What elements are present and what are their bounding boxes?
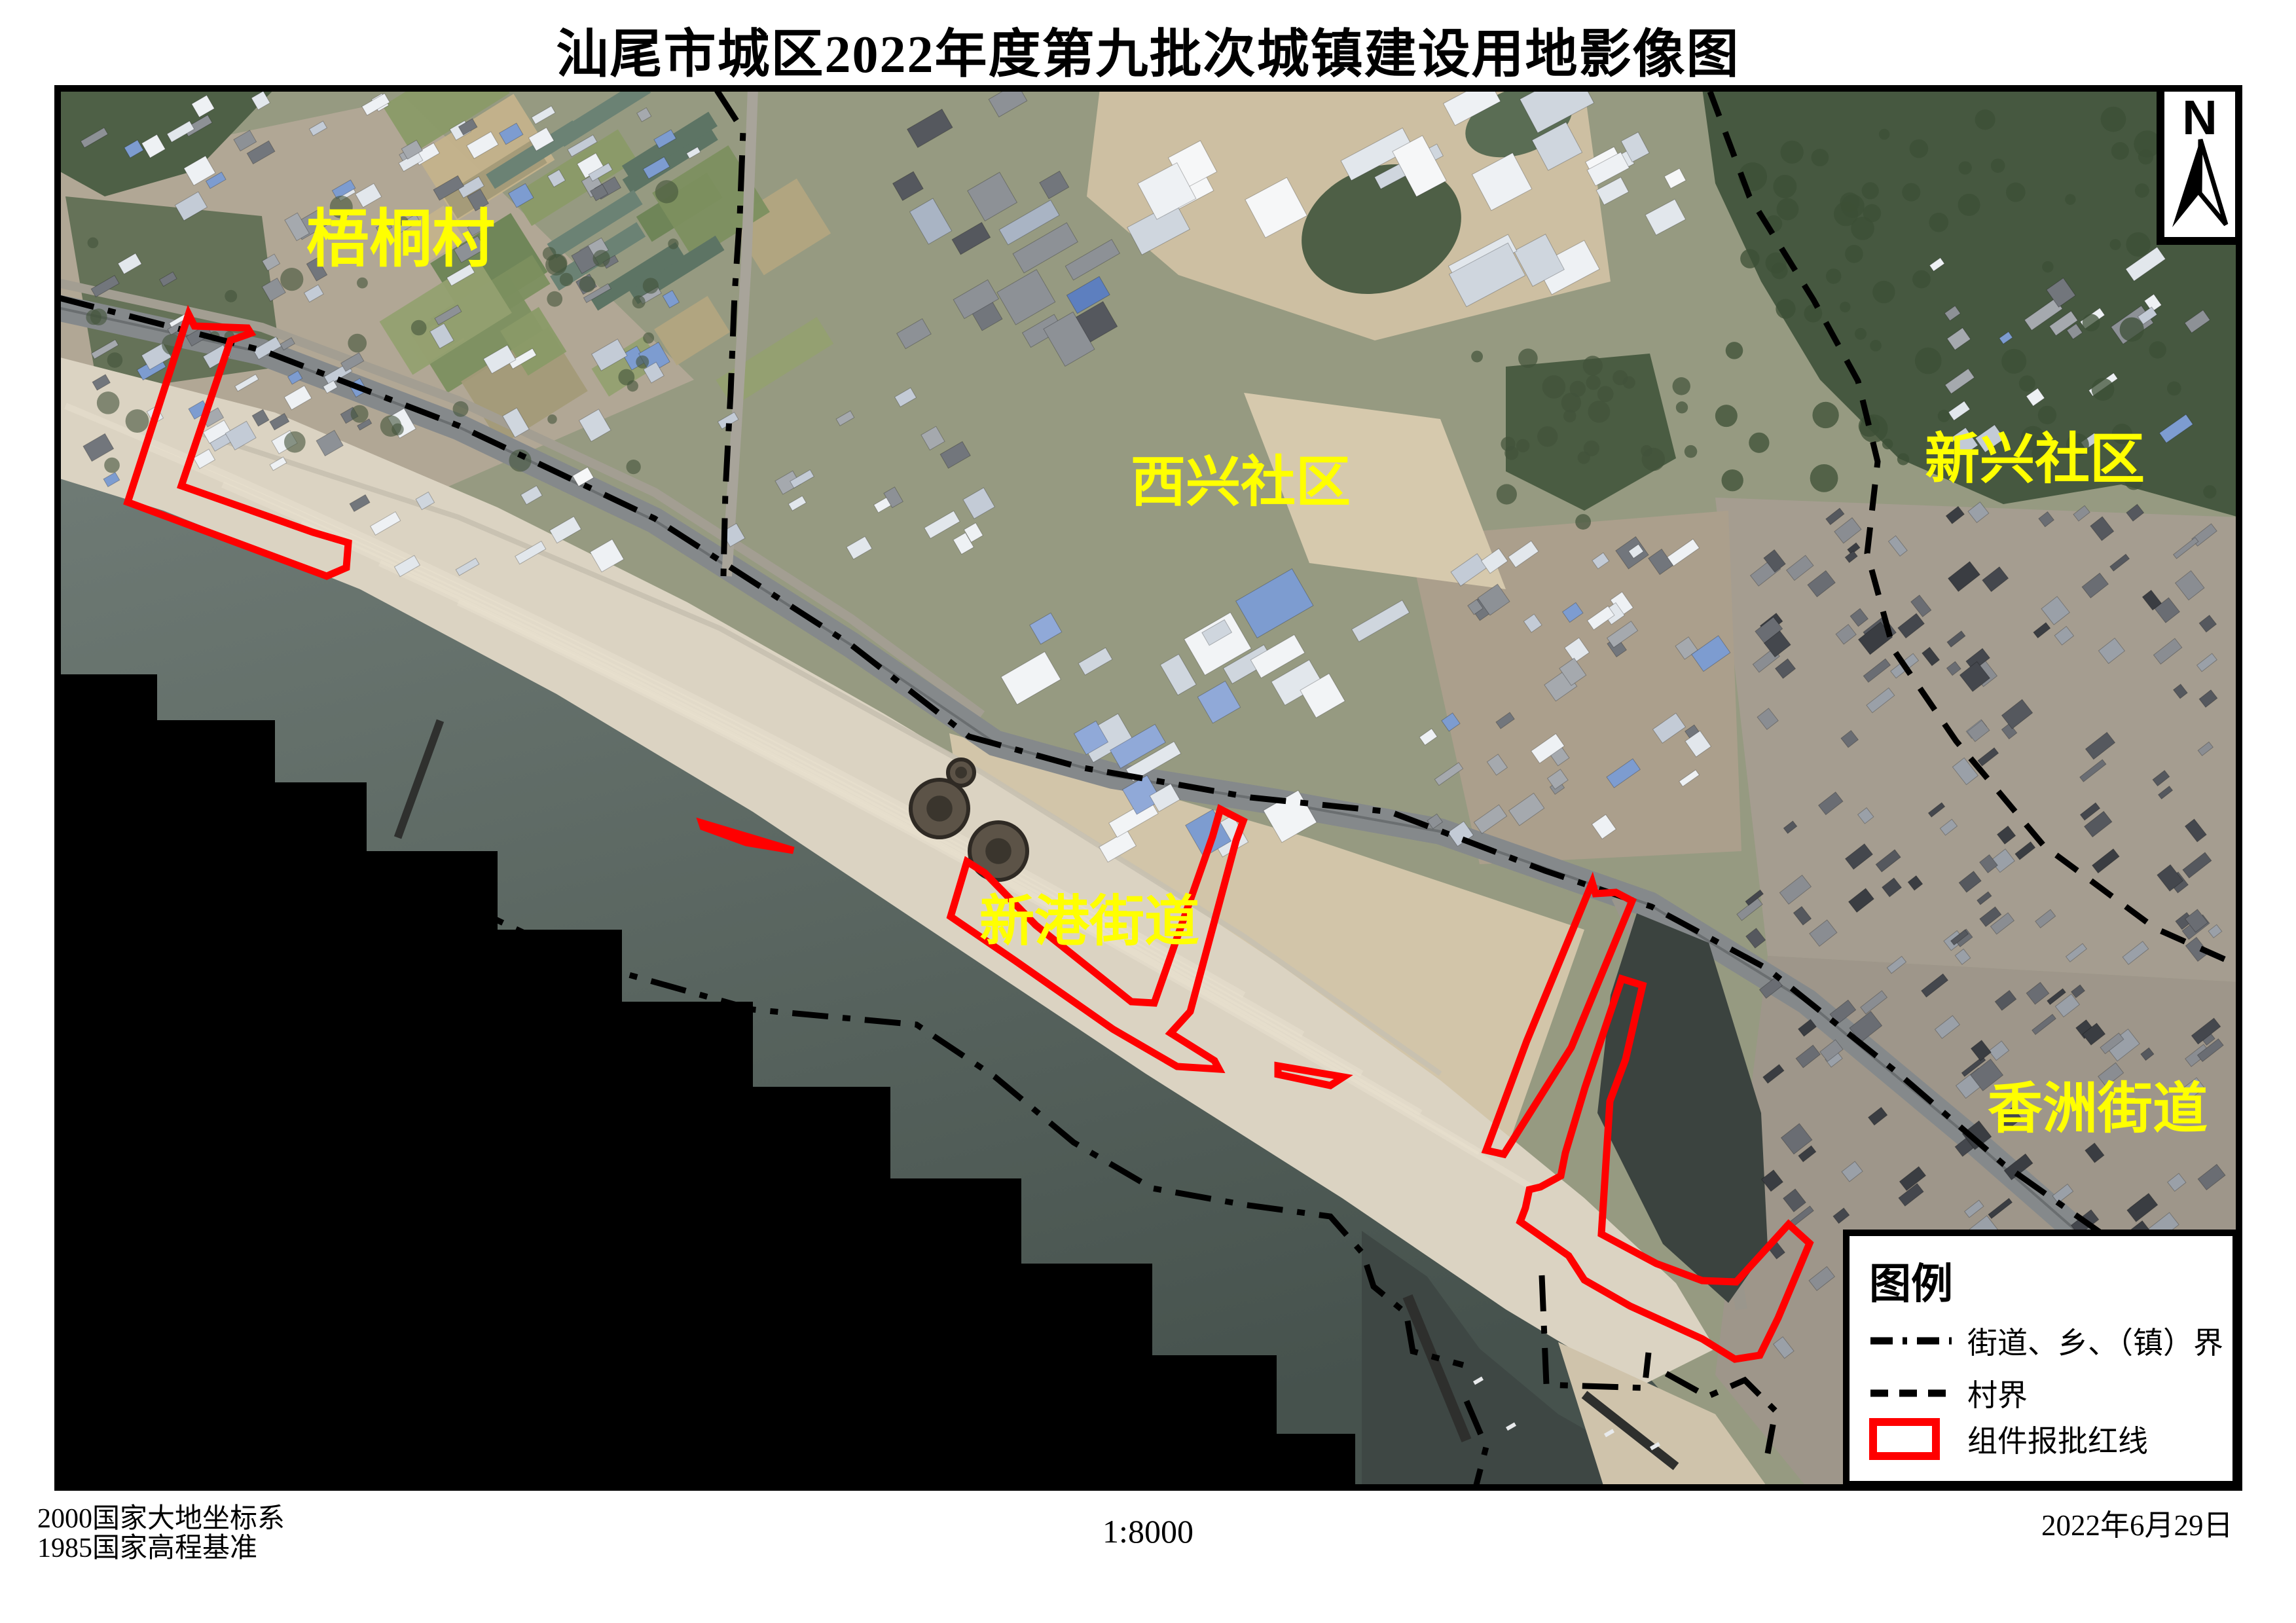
legend-item-redline: 组件报批红线 bbox=[1869, 1418, 2148, 1460]
legend: 图例 街道、乡、（镇）界 村界 组件报批红线 bbox=[1843, 1230, 2239, 1487]
legend-item-village-boundary: 村界 bbox=[1869, 1372, 2028, 1414]
map-scale: 1:8000 bbox=[0, 1514, 2296, 1549]
legend-item-label: 街道、乡、（镇）界 bbox=[1967, 1319, 2223, 1362]
legend-item-street-boundary: 街道、乡、（镇）界 bbox=[1869, 1320, 2223, 1362]
legend-item-label: 组件报批红线 bbox=[1967, 1417, 2148, 1461]
map-sheet: 汕尾市城区2022年度第九批次城镇建设用地影像图 梧桐村西兴社区新兴社区新港街道… bbox=[0, 0, 2296, 1623]
area-label: 西兴社区 bbox=[1131, 452, 1351, 513]
area-label: 新兴社区 bbox=[1925, 429, 2145, 490]
dashed-line-icon bbox=[1869, 1389, 1953, 1398]
map-date: 2022年6月29日 bbox=[2041, 1510, 2233, 1542]
north-arrow: N bbox=[2160, 87, 2239, 241]
area-label: 香洲街道 bbox=[1988, 1079, 2208, 1140]
area-label: 梧桐村 bbox=[306, 204, 495, 274]
north-label: N bbox=[2182, 90, 2217, 145]
red-rectangle-icon bbox=[1869, 1418, 1953, 1460]
legend-item-label: 村界 bbox=[1967, 1372, 2028, 1415]
legend-title: 图例 bbox=[1869, 1250, 1953, 1311]
area-label: 新港街道 bbox=[979, 892, 1199, 953]
dash-dot-line-icon bbox=[1869, 1336, 1953, 1345]
